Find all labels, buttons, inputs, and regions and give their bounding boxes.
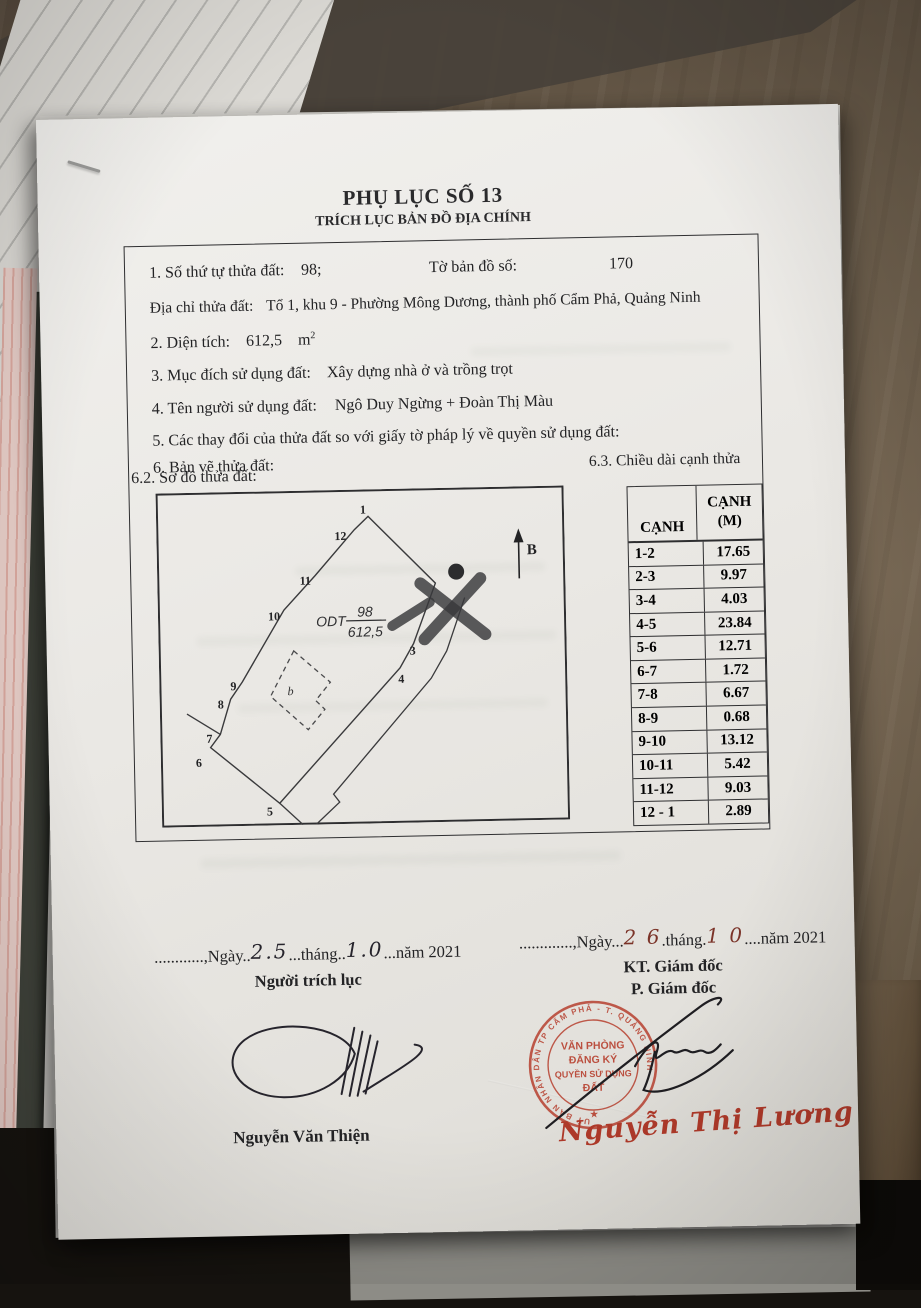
edge-cell: 2-3: [629, 565, 704, 589]
length-cell: 1.72: [706, 658, 765, 682]
edge-cell: 4-5: [630, 612, 705, 636]
edge-cell: 9-10: [632, 730, 707, 754]
photo-of-document: { "page": { "title": "PHỤ LỤC SỐ 13", "s…: [0, 0, 921, 1284]
length-cell: 2.89: [709, 800, 768, 824]
vertex-label: 1: [360, 502, 366, 516]
length-cell: 9.97: [704, 564, 763, 588]
purpose-value: Xây dựng nhà ở và trồng trọt: [327, 360, 513, 381]
x-mark-annotation: [391, 563, 485, 640]
signer-name-left: Nguyễn Văn Thiện: [131, 1123, 471, 1150]
corner-shadow: [856, 1180, 921, 1290]
col-length-header: CẠNH (M): [696, 485, 762, 540]
parcel-sketch: b ODT 98 612,5 1 12 11 10 9 8 7 6 5 4 3 …: [156, 485, 571, 827]
vertex-label: 4: [398, 672, 404, 686]
grey-floor: [349, 1221, 870, 1300]
area-value: 612,5: [246, 332, 282, 350]
sketch-border: [157, 487, 570, 827]
parcel-number-label: 1. Số thứ tự thửa đất:: [149, 262, 285, 282]
table-row: 3-44.03: [630, 588, 764, 614]
vertex-label: 8: [218, 697, 224, 711]
staple-mark: [67, 160, 100, 173]
vertex-label: 5: [267, 804, 273, 818]
map-sheet-value: 170: [609, 255, 633, 274]
boundary-spur: [187, 713, 220, 735]
building-label: b: [287, 684, 293, 698]
table-row: 1-217.65: [629, 541, 763, 567]
length-cell: 6.67: [706, 682, 765, 706]
table-row: 2-39.97: [629, 564, 763, 590]
fraction-bar: [346, 620, 386, 621]
edge-cell: 10-11: [633, 754, 708, 778]
bleed-through-artifact: [201, 850, 621, 868]
vertex-label: 11: [299, 574, 311, 588]
parcel-number: 98: [357, 603, 373, 619]
svg-text:VĂN PHÒNG: VĂN PHÒNG: [561, 1038, 625, 1052]
vertex-label: 12: [334, 529, 346, 543]
length-cell: 17.65: [704, 541, 763, 565]
edge-length-table: CẠNH CẠNH (M) 1-217.652-39.973-44.034-52…: [626, 483, 769, 826]
parcel-polygon: [206, 515, 440, 805]
area-label: 2. Diện tích:: [150, 333, 230, 352]
table-row: 9-1013.12: [632, 729, 766, 755]
handwritten-month-left: 1.0: [345, 937, 383, 962]
table-row: 8-90.68: [632, 706, 766, 732]
table-row: 10-115.42: [633, 753, 767, 779]
official-stamp: UỶ BAN NHÂN DÂN TP CẨM PHẢ - T. QUẢNG NI…: [504, 984, 758, 1199]
parcel-code: ODT: [316, 613, 347, 630]
edge-cell: 3-4: [630, 589, 705, 613]
edge-cell: 1-2: [629, 542, 704, 566]
vertex-label: 10: [268, 609, 280, 623]
length-cell: 4.03: [705, 588, 764, 612]
stamp-center-text: VĂN PHÒNG ĐĂNG KÝ QUYỀN SỬ DỤNG ĐẤT ★: [554, 1038, 633, 1120]
col-edge-header: CẠNH: [627, 486, 697, 541]
edge-cell: 8-9: [632, 707, 707, 731]
length-cell: 12.71: [705, 635, 764, 659]
table-row: 7-86.67: [631, 682, 765, 708]
signature-left-drawing: [204, 1000, 426, 1119]
handwritten-day-left: 2.5: [250, 939, 288, 964]
table-header: CẠNH CẠNH (M): [627, 485, 762, 544]
length-cell: 5.42: [708, 753, 767, 777]
date-line-left: ............,Ngày..2.5...tháng..1.0...nă…: [128, 937, 488, 968]
edge-cell: 7-8: [631, 683, 706, 707]
boundary-extension: [280, 803, 303, 825]
length-cell: 9.03: [708, 776, 767, 800]
length-cell: 0.68: [707, 706, 766, 730]
map-sheet-label: Tờ bản đồ số:: [429, 257, 517, 277]
purpose-label: 3. Mục đích sử dụng đất:: [151, 365, 311, 385]
document-paper: PHỤ LỤC SỐ 13 TRÍCH LỤC BẢN ĐỒ ĐỊA CHÍNH…: [36, 104, 860, 1240]
table-body: 1-217.652-39.973-44.034-523.845-612.716-…: [629, 541, 769, 826]
vertex-label: 7: [206, 732, 212, 746]
area-unit: m2: [298, 332, 316, 349]
address-label: Địa chỉ thửa đất:: [150, 298, 254, 317]
north-arrow-icon: B: [513, 528, 537, 578]
vertex-labels: 1 12 11 10 9 8 7 6 5 4 3: [191, 502, 419, 820]
role-left: Người trích lục: [128, 967, 488, 994]
vertex-label: 9: [230, 679, 236, 693]
parcel-area: 612,5: [348, 623, 384, 640]
svg-text:ĐĂNG KÝ: ĐĂNG KÝ: [569, 1053, 618, 1067]
handwritten-month-right: 1 0: [706, 923, 744, 948]
north-label: B: [527, 542, 537, 558]
edge-cell: 11-12: [633, 777, 708, 801]
owner-label: 4. Tên người sử dụng đất:: [152, 397, 317, 417]
table-row: 4-523.84: [630, 611, 764, 637]
parcel-number-value: 98;: [301, 261, 322, 280]
building-outline: [270, 650, 332, 730]
vertex-label: 6: [196, 756, 202, 770]
table-row: 11-129.03: [633, 776, 767, 802]
handwritten-day-right: 2 6: [623, 925, 661, 950]
vertex-label: 3: [410, 643, 416, 657]
length-cell: 13.12: [707, 729, 766, 753]
table-row: 5-612.71: [631, 635, 765, 661]
edge-cell: 5-6: [631, 636, 706, 660]
owner-value: Ngô Duy Ngừng + Đoàn Thị Màu: [335, 393, 554, 414]
road-line: [312, 597, 469, 824]
date-line-right: .............,Ngày...2 6.tháng.1 0....nă…: [497, 923, 847, 954]
length-cell: 23.84: [705, 611, 764, 635]
field-edge-lengths: 6.3. Chiều dài cạnh thửa: [589, 449, 769, 470]
edge-cell: 12 - 1: [634, 801, 709, 825]
table-row: 6-71.72: [631, 658, 765, 684]
parcel-label: ODT 98 612,5: [316, 603, 387, 640]
edge-cell: 6-7: [631, 660, 706, 684]
table-row: 12 - 12.89: [634, 800, 768, 825]
